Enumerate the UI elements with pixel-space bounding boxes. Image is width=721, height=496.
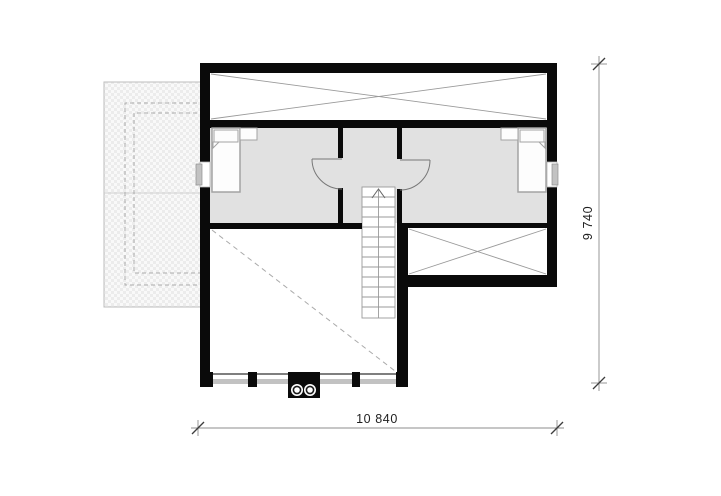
wall-hall-right-stub-upper xyxy=(397,128,402,159)
wall-right-lower xyxy=(547,187,557,287)
roof-hatch-fill xyxy=(104,82,204,307)
floor-plan-canvas: 10 840 9 740 xyxy=(0,0,721,491)
window-left-frame xyxy=(196,164,202,185)
wall-bedroom-right-bottom xyxy=(397,223,547,228)
wall-top xyxy=(200,63,557,73)
attic-void-top xyxy=(211,74,546,119)
dimension-right: 9 740 xyxy=(581,56,607,391)
window-left xyxy=(196,162,210,187)
chimney xyxy=(288,372,320,398)
nightstand-icon xyxy=(501,128,518,140)
wall-hall-right-stub-lower xyxy=(397,189,402,223)
dimension-right-label: 9 740 xyxy=(581,206,595,240)
wall-hall-left-stub-upper xyxy=(338,128,343,158)
staircase xyxy=(362,187,395,318)
wall-below-attic-strip xyxy=(210,120,547,128)
wall-hall-left-stub-lower xyxy=(338,188,343,223)
wall-left-upper xyxy=(200,73,210,162)
wall-wing-bottom xyxy=(397,275,557,287)
wall-bedroom-left-bottom xyxy=(210,223,362,229)
dimension-bottom: 10 840 xyxy=(191,412,564,436)
pillow-icon xyxy=(214,130,238,142)
window-right-frame xyxy=(552,164,558,185)
wall-east-of-void xyxy=(397,228,408,372)
wall-right-upper xyxy=(547,73,557,162)
window-right xyxy=(547,162,558,187)
chimney-flue-ring xyxy=(306,386,313,393)
dimension-bottom-label: 10 840 xyxy=(356,412,398,426)
wall-bottom-mullion-1-over xyxy=(248,372,257,387)
roof-hatch-area xyxy=(104,82,204,307)
attic-void-right xyxy=(409,229,546,274)
wall-bottom-mullion-2-over xyxy=(352,372,360,387)
wall-bottom-corner-right xyxy=(396,372,408,387)
wall-left-lower xyxy=(200,187,210,387)
pillow-icon xyxy=(520,130,544,142)
chimney-flue-ring xyxy=(293,386,300,393)
nightstand-icon xyxy=(240,128,257,140)
wall-bottom-corner-left xyxy=(200,372,213,387)
